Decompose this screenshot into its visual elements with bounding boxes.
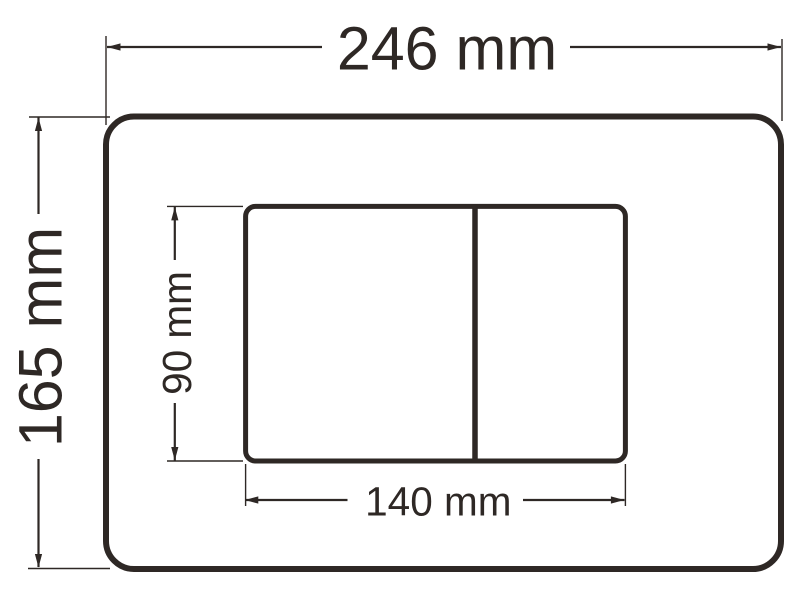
svg-text:165 mm: 165 mm [6,227,74,447]
svg-text:90 mm: 90 mm [154,271,200,395]
svg-text:140 mm: 140 mm [365,479,511,525]
svg-text:246 mm: 246 mm [337,14,557,82]
